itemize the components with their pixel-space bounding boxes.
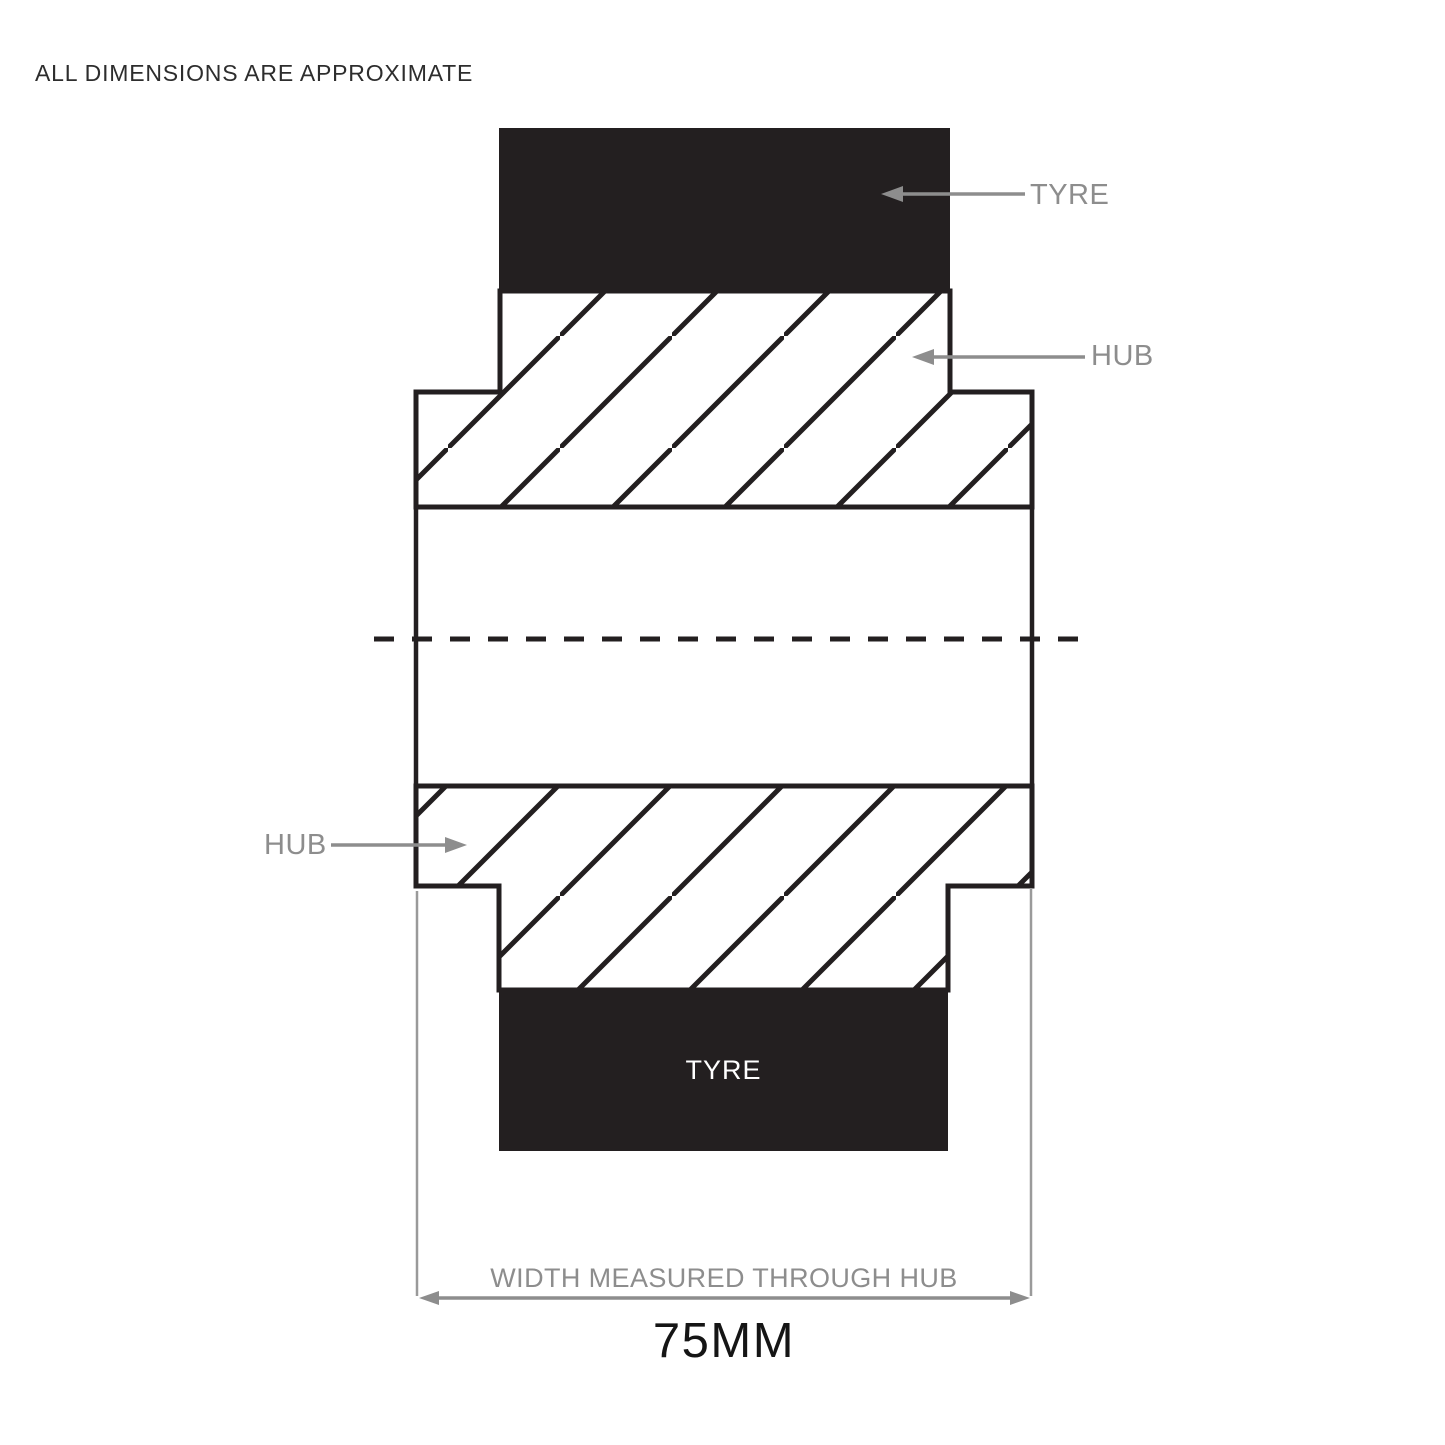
hub-label-right: HUB bbox=[1091, 342, 1154, 371]
dimensions-note: ALL DIMENSIONS ARE APPROXIMATE bbox=[35, 62, 473, 85]
tyre-top-leader-arrow bbox=[881, 186, 1025, 202]
tyre-label-bottom: TYRE bbox=[499, 1057, 948, 1084]
arrowhead-right-icon bbox=[1010, 1291, 1030, 1305]
wheel-cross-section-diagram: ALL DIMENSIONS ARE APPROXIMATE TYRE HUB … bbox=[0, 0, 1445, 1445]
tyre-label-top: TYRE bbox=[1030, 181, 1109, 210]
width-dimension-value: 75MM bbox=[417, 1317, 1031, 1366]
hub-top-section bbox=[416, 291, 1032, 507]
diagram-drawing bbox=[0, 0, 1445, 1445]
hub-left-leader-arrow bbox=[331, 837, 467, 853]
hub-bottom-section bbox=[416, 786, 1032, 990]
width-dimension-arrow bbox=[419, 1291, 1030, 1305]
hub-label-left: HUB bbox=[264, 831, 327, 860]
tyre-top-section bbox=[499, 128, 950, 291]
arrowhead-left-icon bbox=[419, 1291, 439, 1305]
width-dimension-caption: WIDTH MEASURED THROUGH HUB bbox=[417, 1265, 1031, 1292]
